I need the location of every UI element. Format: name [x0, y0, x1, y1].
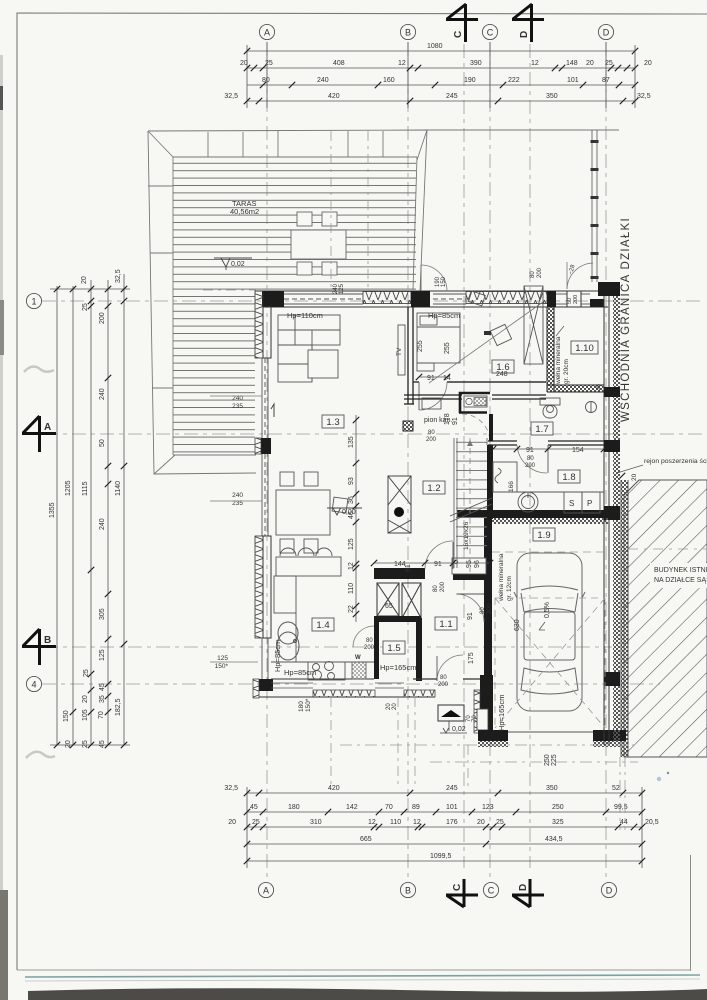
svg-text:25: 25 — [82, 740, 89, 748]
svg-text:B: B — [44, 635, 51, 646]
svg-text:148: 148 — [566, 60, 578, 67]
svg-text:125: 125 — [217, 655, 228, 662]
svg-text:1099,5: 1099,5 — [430, 853, 452, 860]
svg-text:408: 408 — [333, 60, 345, 67]
svg-text:20: 20 — [631, 473, 638, 481]
svg-text:200: 200 — [537, 267, 543, 278]
svg-text:91: 91 — [526, 447, 534, 454]
svg-text:12: 12 — [531, 60, 539, 67]
svg-text:310: 310 — [310, 819, 322, 826]
svg-text:101: 101 — [567, 77, 579, 84]
svg-text:1.10: 1.10 — [575, 343, 594, 354]
svg-text:14: 14 — [443, 375, 451, 382]
svg-text:20: 20 — [81, 276, 88, 284]
svg-text:1.3: 1.3 — [326, 417, 339, 428]
svg-text:1.1: 1.1 — [439, 619, 452, 630]
svg-text:89: 89 — [412, 804, 420, 811]
svg-text:12: 12 — [348, 562, 355, 570]
svg-text:105: 105 — [82, 709, 89, 721]
svg-text:80: 80 — [530, 271, 536, 278]
svg-text:222: 222 — [508, 77, 520, 84]
svg-text:20: 20 — [65, 740, 72, 748]
svg-text:S: S — [569, 499, 574, 508]
svg-text:1.4: 1.4 — [316, 620, 329, 631]
svg-text:125: 125 — [99, 649, 106, 661]
svg-text:325: 325 — [552, 819, 564, 826]
svg-text:BUDYNEK ISTNIEJ: BUDYNEK ISTNIEJ — [654, 567, 707, 574]
svg-text:1.5: 1.5 — [387, 643, 400, 654]
svg-text:434,5: 434,5 — [545, 836, 563, 843]
svg-text:1355: 1355 — [49, 502, 56, 518]
svg-text:32,5: 32,5 — [224, 93, 238, 100]
svg-text:20: 20 — [392, 703, 398, 710]
svg-text:32,5: 32,5 — [115, 269, 122, 283]
svg-text:25: 25 — [605, 60, 613, 67]
svg-text:12: 12 — [413, 819, 421, 826]
svg-text:WSCHODNIA GRANICA DZIAŁKI: WSCHODNIA GRANICA DZIAŁKI — [620, 217, 632, 422]
svg-text:420: 420 — [328, 785, 340, 792]
svg-text:C: C — [453, 31, 464, 38]
svg-text:250: 250 — [552, 804, 564, 811]
svg-text:1.8: 1.8 — [562, 472, 575, 483]
svg-text:A: A — [44, 422, 51, 433]
svg-text:240: 240 — [99, 518, 106, 530]
svg-text:40,56m2: 40,56m2 — [230, 207, 259, 216]
svg-text:32,5: 32,5 — [637, 93, 651, 100]
svg-text:1.7: 1.7 — [535, 424, 548, 435]
svg-text:125: 125 — [348, 538, 355, 550]
svg-text:95: 95 — [466, 560, 473, 568]
svg-text:240: 240 — [232, 492, 243, 499]
svg-text:150*: 150* — [215, 663, 229, 670]
svg-text:91: 91 — [427, 375, 435, 382]
svg-text:32,5: 32,5 — [224, 785, 238, 792]
svg-text:25: 25 — [265, 60, 273, 67]
svg-text:wełna mineralna: wełna mineralna — [555, 336, 562, 385]
svg-text:wełna mineralna: wełna mineralna — [498, 553, 505, 602]
svg-text:4: 4 — [31, 680, 36, 690]
svg-text:Hp=165cm: Hp=165cm — [497, 695, 506, 731]
svg-text:240: 240 — [317, 77, 329, 84]
svg-text:B: B — [405, 28, 411, 38]
svg-text:110: 110 — [390, 819, 401, 826]
svg-text:255: 255 — [444, 342, 451, 354]
svg-text:1: 1 — [31, 297, 36, 307]
svg-text:35: 35 — [99, 695, 106, 703]
svg-text:A: A — [264, 28, 270, 38]
svg-text:20: 20 — [228, 819, 236, 826]
svg-text:rejon poszerzenia ści: rejon poszerzenia ści — [644, 458, 707, 465]
svg-text:25: 25 — [83, 669, 90, 677]
svg-text:93: 93 — [348, 477, 355, 485]
svg-text:80: 80 — [428, 430, 435, 436]
svg-text:B: B — [405, 886, 411, 896]
svg-text:20: 20 — [82, 695, 89, 703]
svg-text:150*: 150* — [305, 698, 312, 712]
svg-text:70: 70 — [385, 804, 393, 811]
svg-text:P: P — [587, 499, 592, 508]
svg-text:255: 255 — [417, 340, 424, 352]
svg-text:135: 135 — [348, 436, 355, 448]
svg-text:190: 190 — [464, 77, 476, 84]
svg-text:36: 36 — [348, 496, 355, 504]
svg-text:1.2: 1.2 — [427, 483, 440, 494]
svg-text:245: 245 — [446, 785, 458, 792]
svg-text:gr. 20cm: gr. 20cm — [563, 359, 570, 384]
svg-text:25: 25 — [252, 819, 260, 826]
svg-text:20: 20 — [240, 60, 248, 67]
svg-text:142: 142 — [346, 804, 358, 811]
svg-text:80: 80 — [262, 77, 270, 84]
svg-text:200: 200 — [438, 682, 449, 688]
svg-text:44: 44 — [620, 819, 628, 826]
svg-text:D: D — [603, 28, 610, 38]
svg-text:1140: 1140 — [115, 481, 122, 496]
svg-text:150: 150 — [441, 276, 447, 287]
svg-text:665: 665 — [360, 836, 372, 843]
svg-text:22: 22 — [348, 605, 355, 613]
svg-text:A: A — [263, 886, 269, 896]
svg-text:250: 250 — [544, 754, 551, 766]
svg-text:gr. 12cm: gr. 12cm — [506, 576, 513, 601]
svg-text:46: 46 — [348, 511, 355, 519]
svg-text:Hp=85cm: Hp=85cm — [284, 668, 316, 677]
svg-text:12: 12 — [368, 819, 376, 826]
svg-text:91: 91 — [452, 417, 459, 425]
svg-text:45: 45 — [99, 740, 106, 748]
svg-text:200: 200 — [573, 295, 579, 304]
svg-text:87: 87 — [602, 77, 610, 84]
svg-text:630: 630 — [514, 619, 521, 631]
svg-text:110: 110 — [348, 583, 355, 594]
svg-text:25: 25 — [82, 303, 89, 311]
svg-text:W: W — [355, 655, 361, 661]
svg-text:80: 80 — [480, 607, 486, 614]
svg-text:45: 45 — [99, 683, 106, 691]
svg-text:150: 150 — [63, 710, 70, 722]
svg-text:20: 20 — [586, 60, 594, 67]
svg-text:91: 91 — [405, 564, 412, 572]
svg-text:25: 25 — [496, 819, 504, 826]
svg-text:1115: 1115 — [82, 481, 89, 496]
svg-text:200: 200 — [364, 645, 375, 651]
svg-text:0,02: 0,02 — [231, 261, 245, 268]
svg-text:200: 200 — [426, 437, 437, 443]
svg-text:C: C — [487, 28, 494, 38]
svg-text:50: 50 — [99, 439, 106, 447]
svg-text:420: 420 — [328, 93, 340, 100]
svg-text:TV: TV — [396, 347, 403, 356]
svg-text:70: 70 — [472, 715, 478, 722]
svg-text:176: 176 — [446, 819, 458, 826]
svg-text:240: 240 — [99, 388, 106, 400]
svg-text:20: 20 — [644, 60, 652, 67]
svg-text:182,5: 182,5 — [115, 698, 122, 716]
svg-text:350: 350 — [546, 93, 558, 100]
svg-text:225: 225 — [551, 754, 558, 766]
svg-text:99,5: 99,5 — [614, 804, 628, 811]
svg-text:200: 200 — [525, 463, 536, 469]
svg-text:1205: 1205 — [65, 480, 72, 496]
svg-text:0,5%: 0,5% — [544, 602, 551, 618]
svg-text:125: 125 — [339, 283, 345, 294]
svg-text:160: 160 — [383, 77, 395, 84]
svg-text:80: 80 — [527, 456, 534, 462]
svg-text:91: 91 — [434, 561, 442, 568]
svg-text:20,5: 20,5 — [645, 819, 659, 826]
svg-text:178: 178 — [444, 413, 451, 425]
svg-text:Hp=165cm: Hp=165cm — [380, 663, 416, 672]
svg-text:70: 70 — [98, 711, 105, 719]
svg-text:C: C — [488, 886, 495, 896]
svg-text:80: 80 — [366, 638, 373, 644]
svg-text:91: 91 — [467, 612, 474, 620]
svg-text:175: 175 — [468, 652, 475, 664]
svg-text:248: 248 — [496, 371, 508, 378]
svg-text:245: 245 — [446, 93, 458, 100]
svg-text:154: 154 — [572, 447, 584, 454]
svg-text:NA DZIAŁCE SĄS: NA DZIAŁCE SĄS — [654, 577, 707, 584]
svg-text:80: 80 — [433, 585, 439, 592]
svg-text:200: 200 — [487, 603, 493, 614]
svg-text:52: 52 — [612, 785, 620, 792]
svg-text:123: 123 — [482, 804, 494, 811]
svg-text:20: 20 — [477, 819, 485, 826]
svg-text:200: 200 — [99, 312, 106, 324]
svg-text:390: 390 — [470, 60, 482, 67]
svg-text:25: 25 — [596, 384, 602, 390]
svg-text:0,02: 0,02 — [452, 726, 466, 733]
svg-text:D: D — [518, 884, 529, 891]
svg-text:80: 80 — [440, 675, 447, 681]
svg-text:350: 350 — [546, 785, 558, 792]
svg-text:C: C — [452, 884, 463, 891]
svg-text:16x19x26: 16x19x26 — [463, 521, 470, 550]
svg-text:166: 166 — [508, 481, 515, 492]
svg-text:305: 305 — [99, 608, 106, 620]
svg-text:65: 65 — [385, 603, 393, 610]
svg-text:D: D — [519, 31, 530, 38]
svg-text:101: 101 — [446, 804, 458, 811]
svg-text:96: 96 — [474, 560, 481, 568]
svg-text:180: 180 — [288, 804, 300, 811]
svg-text:180: 180 — [298, 701, 305, 712]
svg-text:235: 235 — [232, 403, 243, 410]
svg-text:Hp=110cm: Hp=110cm — [287, 311, 323, 320]
svg-text:200: 200 — [440, 581, 446, 592]
svg-text:45: 45 — [250, 804, 258, 811]
svg-text:1.9: 1.9 — [537, 530, 550, 541]
svg-text:1080: 1080 — [427, 43, 443, 50]
svg-text:12: 12 — [398, 60, 406, 67]
svg-text:Hp=85cm: Hp=85cm — [428, 311, 460, 320]
svg-text:Hp=85cm: Hp=85cm — [273, 640, 282, 672]
svg-text:D: D — [606, 886, 613, 896]
